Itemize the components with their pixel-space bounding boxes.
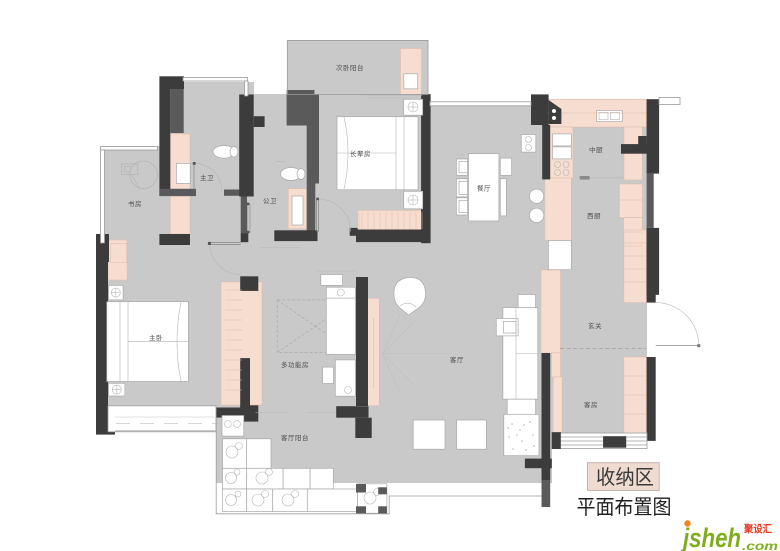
svg-text:jsheh: jsheh [681,523,741,551]
svg-text:餐厅: 餐厅 [477,184,491,193]
svg-text:平面布置图: 平面布置图 [577,496,672,519]
svg-text:客厅: 客厅 [450,355,464,364]
svg-text:长辈房: 长辈房 [350,149,371,158]
svg-text:客厅阳台: 客厅阳台 [281,433,309,442]
svg-text:.com: .com [742,541,778,551]
svg-text:西厨: 西厨 [587,212,601,220]
svg-text:书房: 书房 [128,199,142,208]
svg-text:中厨: 中厨 [589,145,603,154]
svg-text:聚设汇: 聚设汇 [743,523,772,536]
svg-text:公卫: 公卫 [263,197,277,205]
svg-text:主卫: 主卫 [200,173,214,182]
svg-text:玄关: 玄关 [588,321,602,330]
svg-text:主卧: 主卧 [149,333,163,342]
svg-text:次卧阳台: 次卧阳台 [336,63,364,72]
svg-text:客房: 客房 [584,400,598,409]
svg-text:收纳区: 收纳区 [596,466,654,489]
svg-text:多功能房: 多功能房 [281,360,309,369]
